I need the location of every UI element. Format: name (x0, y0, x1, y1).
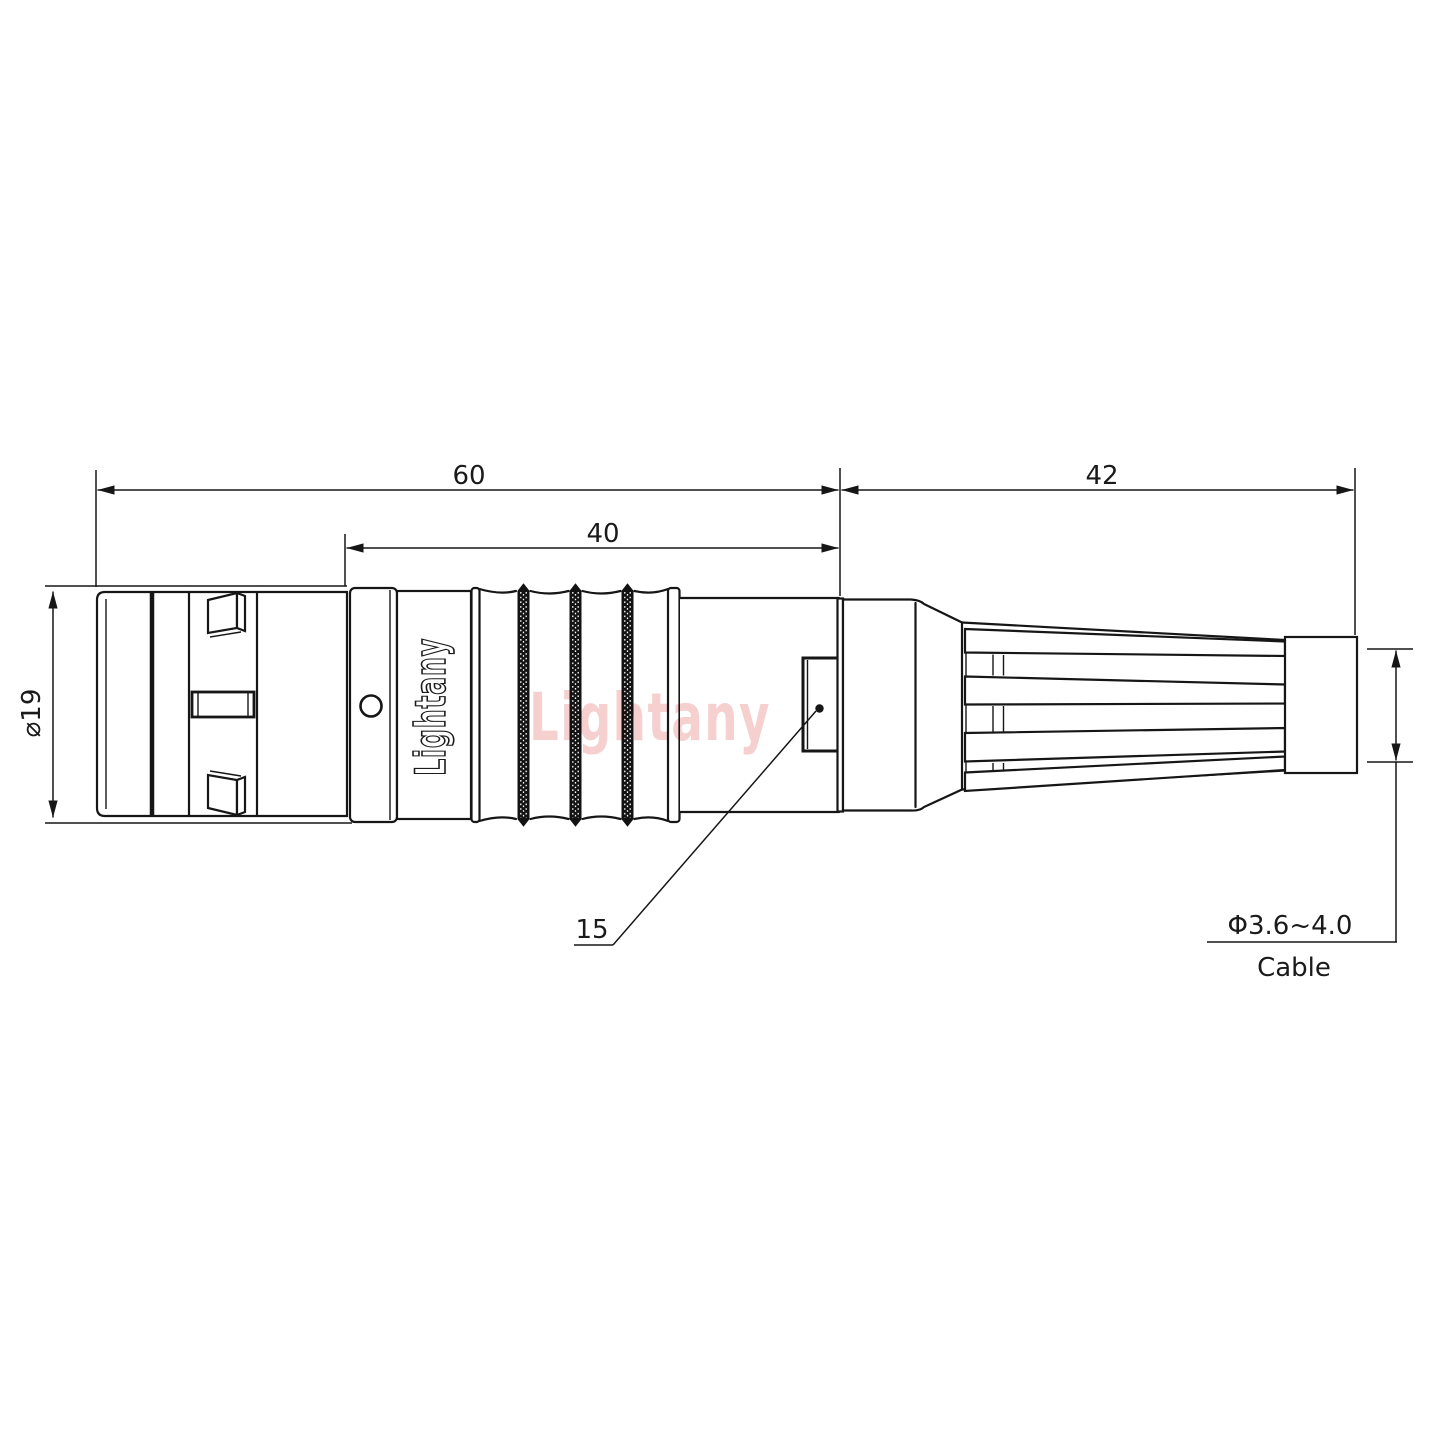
watermark-text: Lightany (529, 679, 771, 756)
dimension-total-length: 60 (98, 461, 839, 491)
latch-window (192, 692, 254, 717)
dimension-rear-length: 42 (842, 461, 1354, 491)
collar-hole (361, 696, 382, 717)
leader-dot (815, 704, 823, 712)
release-latch (803, 658, 840, 751)
boot-fin (965, 629, 1285, 656)
strain-relief-boot (962, 623, 1357, 792)
technical-drawing-canvas: 60 42 40 ⌀19 15 Φ3.6 (0, 0, 1440, 1440)
body-brand-logo: Lightany (406, 638, 455, 776)
cable-word-label: Cable (1257, 953, 1331, 983)
boot-fin (965, 677, 1285, 705)
dimension-grip-length: 40 (347, 519, 839, 549)
rear-nut (843, 600, 966, 811)
callout-feature-15-label: 15 (575, 915, 608, 945)
collar-ring (350, 588, 397, 822)
cable-exit-cap (1285, 637, 1357, 773)
cable-diameter-label: Φ3.6~4.0 (1228, 911, 1353, 941)
boot-fin (965, 757, 1285, 792)
dimension-rear-length-label: 42 (1085, 461, 1118, 491)
dimension-shell-diameter-label: ⌀19 (17, 689, 47, 738)
connector-dimension-drawing: 60 42 40 ⌀19 15 Φ3.6 (0, 0, 1440, 1440)
dimension-grip-length-label: 40 (586, 519, 619, 549)
front-shell (97, 592, 347, 816)
dimension-total-length-label: 60 (452, 461, 485, 491)
boot-fin (965, 728, 1285, 762)
knurl-band (518, 584, 529, 826)
dimension-shell-diameter: ⌀19 (17, 592, 53, 818)
